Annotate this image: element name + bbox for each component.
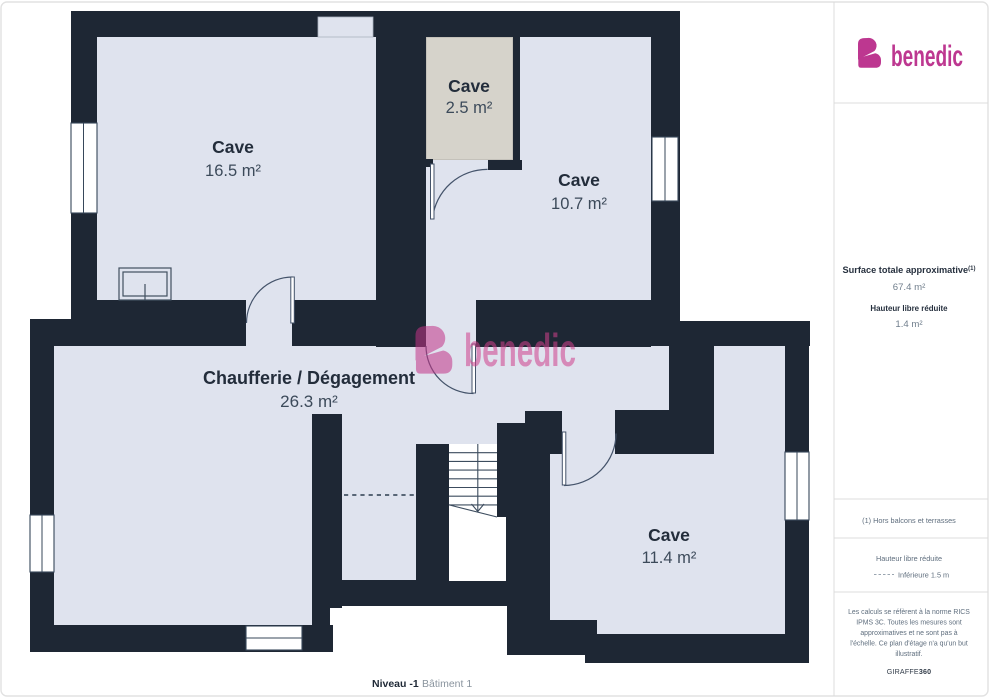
- svg-text:(1) Hors balcons et terrasses: (1) Hors balcons et terrasses: [862, 516, 956, 525]
- svg-text:11.4 m²: 11.4 m²: [642, 549, 697, 567]
- svg-text:Cave: Cave: [448, 76, 490, 96]
- svg-text:illustratif.: illustratif.: [895, 651, 922, 658]
- svg-text:67.4 m²: 67.4 m²: [893, 282, 926, 293]
- svg-text:Les calculs se réfèrent à la n: Les calculs se réfèrent à la norme RICS: [848, 609, 970, 616]
- svg-text:approximatives et ne sont pas: approximatives et ne sont pas à: [860, 630, 957, 637]
- svg-text:Cave: Cave: [558, 170, 600, 190]
- svg-text:Hauteur libre réduite: Hauteur libre réduite: [870, 304, 948, 313]
- svg-text:Inférieure 1.5 m: Inférieure 1.5 m: [898, 571, 949, 580]
- svg-text:benedic: benedic: [464, 324, 576, 376]
- svg-text:IPMS 3C. Toutes les mesures so: IPMS 3C. Toutes les mesures sont: [856, 620, 962, 627]
- svg-text:Cave: Cave: [648, 525, 690, 545]
- svg-text:26.3 m²: 26.3 m²: [280, 392, 338, 411]
- svg-text:2.5 m²: 2.5 m²: [446, 99, 493, 117]
- svg-text:Niveau -1: Niveau -1: [372, 678, 419, 690]
- svg-text:10.7 m²: 10.7 m²: [551, 195, 607, 213]
- svg-text:benedic: benedic: [891, 40, 963, 73]
- svg-text:l'échelle. Ce plan d'étage n'a: l'échelle. Ce plan d'étage n'a qu'un but: [850, 641, 968, 648]
- svg-text:16.5 m²: 16.5 m²: [205, 162, 261, 180]
- svg-text:Cave: Cave: [212, 137, 254, 157]
- svg-text:Chaufferie / Dégagement: Chaufferie / Dégagement: [203, 368, 415, 388]
- svg-text:GIRAFFE360: GIRAFFE360: [887, 668, 932, 676]
- svg-text:Hauteur libre réduite: Hauteur libre réduite: [876, 554, 942, 563]
- svg-text:Surface totale approximative(1: Surface totale approximative(1): [843, 265, 976, 275]
- svg-text:1.4 m²: 1.4 m²: [895, 319, 923, 330]
- svg-text:Bâtiment 1: Bâtiment 1: [422, 678, 472, 690]
